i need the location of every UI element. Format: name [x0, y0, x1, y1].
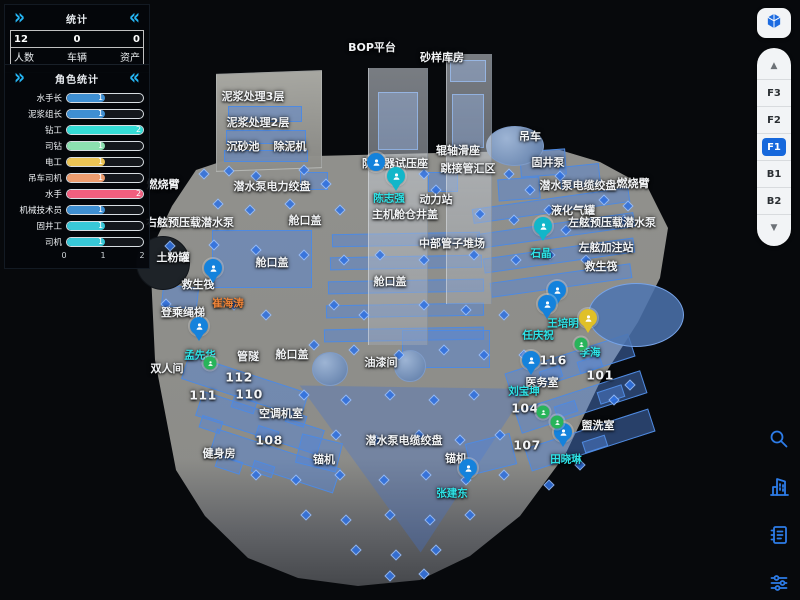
role-track: 1: [66, 93, 144, 103]
map-label-room[interactable]: 锚机: [313, 451, 335, 467]
role-bar-row: 水手长 1: [10, 90, 144, 105]
map-label-room[interactable]: 固井泵: [532, 154, 565, 170]
role-bar-row: 固井工 1: [10, 218, 144, 233]
map-label-room[interactable]: 跳接管汇区: [441, 160, 496, 176]
floor-button-f2[interactable]: F2: [757, 106, 791, 133]
person-pin-teal[interactable]: [387, 167, 405, 185]
building-icon: [767, 475, 791, 503]
person-icon: [579, 309, 597, 327]
map-label-room[interactable]: 土粉罐: [157, 249, 190, 265]
view-mode-cube-button[interactable]: [757, 8, 791, 38]
person-pin-green[interactable]: [537, 406, 550, 419]
role-bar-row: 吊车司机 1: [10, 170, 144, 185]
role-axis: 0 1 2: [64, 251, 142, 263]
role-track: 2: [66, 125, 144, 135]
stats-panel-title: 统计: [66, 11, 88, 26]
storage-tank: [588, 283, 684, 347]
map-label-room[interactable]: 舱口盖: [276, 346, 309, 362]
role-value: 1: [98, 141, 103, 151]
chevron-left-icon[interactable]: «: [129, 67, 140, 88]
role-value: 2: [136, 189, 141, 199]
app-root: BOP平台砂样库房泥浆处理3层泥浆处理2层沉砂池除泥机吊车固井泵辊轴滑座跳接管汇…: [0, 0, 800, 600]
map-label-person[interactable]: 刘宝坤: [508, 384, 540, 399]
cube-3d-icon: [765, 12, 783, 34]
stats-panel: » 统计 « 12 0 0 人数 车辆 资产: [4, 4, 150, 73]
people-count: 12: [11, 34, 55, 45]
map-label-room-number[interactable]: 111: [189, 388, 217, 403]
map-label-room[interactable]: 救生筏: [585, 258, 618, 274]
map-label-room[interactable]: 左舷预压载潜水泵: [568, 214, 656, 230]
role-label: 司钻: [10, 140, 66, 152]
map-label-room[interactable]: 潜水泵电缆绞盘: [366, 432, 443, 448]
role-label: 钻工: [10, 124, 66, 136]
role-bar-row: 钻工 2: [10, 122, 144, 137]
role-label: 水手长: [10, 92, 66, 104]
role-track: 1: [66, 109, 144, 119]
role-bar-row: 机械技术员 1: [10, 202, 144, 217]
role-track: 1: [66, 205, 144, 215]
map-label-room[interactable]: 双人间: [151, 360, 184, 376]
person-pin-blue[interactable]: [538, 295, 556, 313]
person-icon: [190, 317, 208, 335]
person-pin-yellow[interactable]: [579, 309, 597, 327]
map-label-room[interactable]: 辊轴滑座: [436, 142, 480, 158]
person-pin-badge[interactable]: [367, 153, 385, 171]
map-label-room-number[interactable]: 112: [225, 370, 253, 385]
role-panel-title: 角色统计: [55, 71, 99, 86]
map-label-room[interactable]: 泥浆处理2层: [227, 114, 290, 130]
map-label-room-number[interactable]: 108: [255, 433, 283, 448]
person-pin-green[interactable]: [551, 416, 564, 429]
person-icon: [522, 351, 540, 369]
role-track: 1: [66, 221, 144, 231]
floor-selector: ▲F3F2F1B1B2▼: [757, 8, 791, 246]
person-icon: [537, 406, 550, 419]
map-label-room[interactable]: 舱口盖: [289, 212, 322, 228]
chevron-left-icon[interactable]: «: [129, 7, 140, 28]
map-label-room[interactable]: 沉砂池: [227, 138, 260, 154]
role-stats-panel: » 角色统计 « 水手长 1 泥浆组长 1 钻工 2 司钻 1 电工 1 吊车司…: [4, 64, 150, 269]
role-value: 1: [98, 93, 103, 103]
role-label: 固井工: [10, 220, 66, 232]
building-button[interactable]: [766, 476, 792, 502]
role-bar-fill: [67, 190, 143, 198]
role-bar-fill: [67, 126, 143, 134]
person-pin-green[interactable]: [204, 357, 217, 370]
filter-sliders-icon: [767, 571, 791, 599]
role-bar-row: 电工 1: [10, 154, 144, 169]
map-label-room[interactable]: 左舷加注站: [579, 239, 634, 255]
person-icon: [459, 459, 477, 477]
map-label-room[interactable]: 空调机室: [259, 405, 303, 421]
role-value: 1: [98, 109, 103, 119]
map-label-room[interactable]: 舱口盖: [256, 254, 289, 270]
person-pin-blue[interactable]: [190, 317, 208, 335]
map-label-room[interactable]: 吊车: [519, 128, 541, 144]
map-label-room-number[interactable]: 116: [539, 353, 567, 368]
map-label-person[interactable]: 石晶: [531, 246, 552, 261]
map-label-room[interactable]: 中部管子堆场: [419, 235, 485, 251]
map-label-room-number[interactable]: 104: [511, 401, 539, 416]
list-button[interactable]: [766, 524, 792, 550]
role-value: 1: [98, 205, 103, 215]
role-label: 吊车司机: [10, 172, 66, 184]
person-icon: [387, 167, 405, 185]
map-label-room[interactable]: 盥洗室: [582, 417, 615, 433]
vehicle-count: 0: [55, 34, 99, 45]
floor-button-f1[interactable]: F1: [757, 133, 791, 160]
person-pin-blue[interactable]: [459, 459, 477, 477]
map-label-room[interactable]: 主机舱仓井盖: [372, 206, 438, 222]
search-icon: [767, 427, 791, 455]
person-icon: [575, 338, 588, 351]
role-bar-row: 水手 2: [10, 186, 144, 201]
axis-tick: 0: [61, 251, 66, 260]
map-label-room-number[interactable]: 110: [235, 387, 263, 402]
axis-tick: 1: [100, 251, 105, 260]
map-label-room[interactable]: 右舷预压载潜水泵: [146, 214, 234, 230]
map-label-person[interactable]: 田晓琳: [550, 452, 582, 467]
person-icon: [204, 259, 222, 277]
role-value: 1: [98, 237, 103, 247]
filter-button[interactable]: [766, 572, 792, 598]
people-label: 人数: [11, 49, 55, 64]
role-value: 1: [98, 173, 103, 183]
role-label: 泥浆组长: [10, 108, 66, 120]
person-icon: [534, 217, 552, 235]
role-label: 水手: [10, 188, 66, 200]
map-label-room[interactable]: 动力站: [420, 191, 453, 207]
map-label-room[interactable]: 管隧: [237, 348, 259, 364]
search-button[interactable]: [766, 428, 792, 454]
role-track: 1: [66, 141, 144, 151]
sand-sample-tower: [446, 54, 492, 304]
right-toolbar: [766, 428, 792, 598]
role-track: 2: [66, 189, 144, 199]
chevron-right-icon[interactable]: »: [14, 7, 25, 28]
map-label-room[interactable]: 燃烧臂: [147, 176, 180, 192]
map-label-room[interactable]: 除泥机: [274, 138, 307, 154]
map-label-room[interactable]: 燃烧臂: [617, 175, 650, 191]
role-bar-row: 司机 1: [10, 234, 144, 249]
asset-label: 资产: [99, 49, 143, 64]
person-icon: [204, 357, 217, 370]
stats-table: 12 0 0 人数 车辆 资产: [10, 30, 144, 65]
person-pin-blue[interactable]: [204, 259, 222, 277]
person-pin-blue[interactable]: [522, 351, 540, 369]
role-bars: 水手长 1 泥浆组长 1 钻工 2 司钻 1 电工 1 吊车司机 1 水手 2 …: [8, 90, 146, 249]
map-label-room-number[interactable]: 107: [513, 438, 541, 453]
map-label-room[interactable]: 泥浆处理3层: [222, 88, 285, 104]
person-pin-teal[interactable]: [534, 217, 552, 235]
floor-down-arrow[interactable]: ▼: [757, 214, 791, 241]
floor-button-f3[interactable]: F3: [757, 79, 791, 106]
map-label-person[interactable]: 崔海涛: [212, 296, 244, 311]
person-icon: [538, 295, 556, 313]
map-label-room[interactable]: 舱口盖: [374, 273, 407, 289]
chevron-right-icon[interactable]: »: [14, 67, 25, 88]
role-track: 1: [66, 157, 144, 167]
role-label: 电工: [10, 156, 66, 168]
floor-up-arrow[interactable]: ▲: [757, 53, 791, 79]
map-label-room[interactable]: 健身房: [203, 445, 236, 461]
cylinder-structure: [312, 352, 348, 386]
person-icon: [551, 416, 564, 429]
role-bar-row: 泥浆组长 1: [10, 106, 144, 121]
map-label-room[interactable]: 砂样库房: [420, 49, 464, 65]
role-value: 1: [98, 221, 103, 231]
role-value: 1: [98, 157, 103, 167]
role-label: 机械技术员: [10, 204, 66, 216]
asset-count: 0: [99, 34, 143, 45]
role-bar-row: 司钻 1: [10, 138, 144, 153]
map-label-person[interactable]: 任庆祝: [522, 328, 554, 343]
vehicle-label: 车辆: [55, 49, 99, 64]
floor-button-b1[interactable]: B1: [757, 160, 791, 187]
axis-tick: 2: [139, 251, 144, 260]
floor-button-b2[interactable]: B2: [757, 187, 791, 214]
map-label-room[interactable]: 油漆间: [365, 354, 398, 370]
map-label-room[interactable]: 潜水泵电缆绞盘: [540, 177, 617, 193]
map-label-room-number[interactable]: 101: [586, 368, 614, 383]
role-label: 司机: [10, 236, 66, 248]
map-label-room[interactable]: 潜水泵电力绞盘: [234, 178, 311, 194]
role-value: 2: [136, 125, 141, 135]
floor-list: ▲F3F2F1B1B2▼: [757, 48, 791, 246]
person-pin-green[interactable]: [575, 338, 588, 351]
role-track: 1: [66, 237, 144, 247]
role-track: 1: [66, 173, 144, 183]
person-icon: [367, 153, 385, 171]
list-icon: [767, 523, 791, 551]
map-label-room[interactable]: BOP平台: [348, 39, 396, 55]
